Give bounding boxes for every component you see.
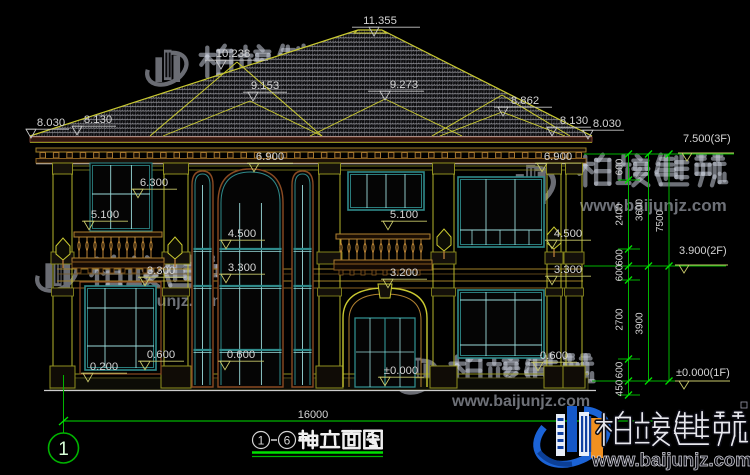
svg-text:9.153: 9.153 — [251, 80, 279, 92]
svg-text:600: 600 — [615, 361, 626, 378]
svg-text:4.500: 4.500 — [228, 228, 256, 240]
svg-text:3.200: 3.200 — [390, 267, 418, 279]
svg-text:0.600: 0.600 — [540, 350, 568, 362]
svg-text:2700: 2700 — [615, 308, 626, 331]
svg-text:±0.000(1F): ±0.000(1F) — [676, 367, 730, 379]
svg-text:6.300: 6.300 — [140, 177, 168, 189]
svg-text:6.900: 6.900 — [256, 151, 284, 163]
svg-text:600: 600 — [615, 264, 626, 281]
svg-text:8.862: 8.862 — [511, 95, 539, 107]
svg-text:7500: 7500 — [655, 209, 666, 232]
svg-text:8.130: 8.130 — [560, 115, 588, 127]
svg-text:7.500(3F): 7.500(3F) — [683, 133, 731, 145]
svg-text:8.130: 8.130 — [84, 114, 112, 126]
svg-text:1: 1 — [258, 434, 265, 448]
svg-text:±0.000: ±0.000 — [384, 365, 418, 377]
svg-text:16000: 16000 — [298, 409, 329, 421]
svg-text:1: 1 — [58, 439, 69, 460]
svg-text:3.900(2F): 3.900(2F) — [679, 245, 727, 257]
svg-text:8.030: 8.030 — [37, 117, 65, 129]
svg-text:5.100: 5.100 — [91, 209, 119, 221]
svg-text:450: 450 — [615, 379, 626, 396]
svg-text:www.baijunjz.com: www.baijunjz.com — [579, 196, 727, 215]
svg-text:600: 600 — [615, 158, 626, 175]
svg-text:3.300: 3.300 — [228, 262, 256, 274]
svg-text:4.500: 4.500 — [554, 228, 582, 240]
svg-text:3.300: 3.300 — [554, 264, 582, 276]
svg-text:600: 600 — [615, 249, 626, 266]
svg-text:0.600: 0.600 — [147, 349, 175, 361]
svg-text:2400: 2400 — [615, 203, 626, 226]
svg-text:0.600: 0.600 — [227, 349, 255, 361]
svg-text:0.200: 0.200 — [90, 361, 118, 373]
svg-text:9.273: 9.273 — [390, 79, 418, 91]
svg-text:3600: 3600 — [635, 198, 646, 221]
svg-text:6: 6 — [284, 434, 291, 448]
svg-text:8.030: 8.030 — [593, 118, 621, 130]
svg-text:3.300: 3.300 — [147, 265, 175, 277]
svg-text:6.900: 6.900 — [544, 151, 572, 163]
svg-text:5.100: 5.100 — [390, 209, 418, 221]
svg-text:3900: 3900 — [635, 312, 646, 335]
svg-text:www.baijunjz.com: www.baijunjz.com — [591, 449, 750, 470]
svg-text:10.238: 10.238 — [216, 48, 251, 60]
svg-text:11.355: 11.355 — [363, 15, 397, 27]
